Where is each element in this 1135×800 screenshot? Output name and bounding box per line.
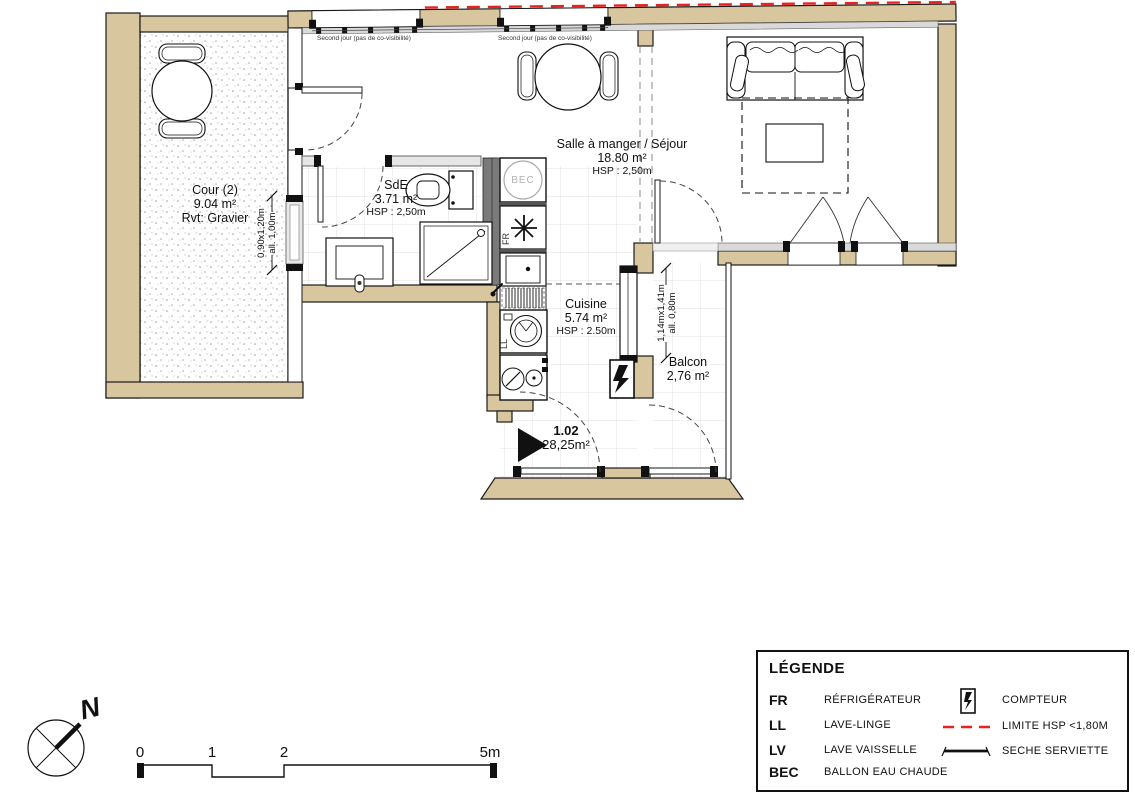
floorplan-drawing [0,0,1135,800]
dimension-balcony-window: 1,14mx1,41m all. 0,80m [657,284,679,342]
courtyard-table-icon [152,44,212,138]
room-label-sde: SdE 3.71 m² HSP : 2,50m [366,179,425,218]
label-bec: BEC [511,175,535,186]
legend-abbr-lv: LV [769,742,786,758]
scale-tick-1: 1 [208,744,216,761]
unit-label: 1.02 28,25m² [542,424,590,453]
north-compass-icon [28,720,84,776]
legend-label-compteur: COMPTEUR [1002,694,1067,706]
legend-abbr-bec: BEC [769,764,799,780]
room-label-cuisine: Cuisine 5.74 m² HSP : 2.50m [556,298,615,337]
legend-abbr-ll: LL [769,717,786,733]
north-facade-wall [288,2,956,34]
compteur-icon [610,360,634,398]
washbasin-icon [326,238,393,292]
legend-label-bec: BALLON EAU CHAUDE [824,766,948,778]
label-fr: FR [501,233,511,245]
balcony-window [620,266,637,362]
legend-label-fr: RÉFRIGÉRATEUR [824,694,921,706]
compteur-icon [961,689,975,713]
shower-icon [420,222,492,284]
dining-table-icon [518,44,618,110]
legend-label-lv: LAVE VAISSELLE [824,744,917,756]
room-label-sejour: Salle à manger / Séjour 18.80 m² HSP : 2… [557,138,688,177]
dimension-left-window: 0,90x1,20m all. 1,00m [257,208,279,258]
legend-abbr-fr: FR [769,692,788,708]
scale-tick-5m: 5m [480,744,501,761]
legend-label-ll: LAVE-LINGE [824,719,891,731]
legend-label-seche-serviette: SECHE SERVIETTE [1002,745,1108,757]
label-ll: LL [499,339,509,349]
legend-title: LÉGENDE [769,660,845,677]
window-note-right: Second jour (pas de co-visibilité) [498,35,592,42]
west-partition [286,28,303,382]
room-label-balcon: Balcon 2,76 m² [667,356,709,384]
stove-icon [500,355,548,400]
room-label-cour: Cour (2) 9.04 m² Rvt: Gravier [182,184,249,225]
balcony-railing [726,263,731,479]
coffee-table-icon [766,124,823,162]
scale-tick-0: 0 [136,744,144,761]
scale-tick-2: 2 [280,744,288,761]
legend-label-limite-hsp: LIMITE HSP <1,80M [1002,720,1108,732]
window-note-left: Second jour (pas de co-visibilité) [317,35,411,42]
floor-plan-page: Cour (2) 9.04 m² Rvt: Gravier Salle à ma… [0,0,1135,800]
courtyard-door [302,87,362,150]
scale-bar [137,763,497,778]
sofa-icon [727,37,866,100]
